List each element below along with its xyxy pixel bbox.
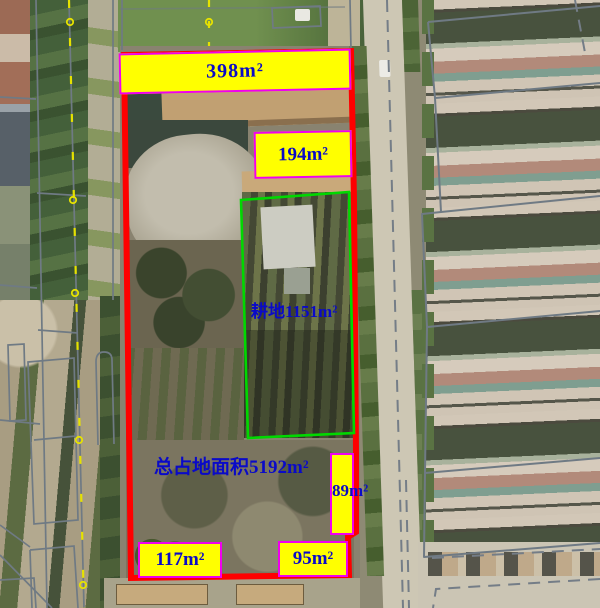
area-label-right-text: 89m² xyxy=(332,481,368,501)
area-label-upper: 194m² xyxy=(254,130,353,179)
area-label-bottom-left: 117m² xyxy=(138,542,222,578)
aerial-parcel-map: 398m² 194m² 89m² 117m² 95m² 耕地1151m² 总占地… xyxy=(0,0,600,608)
area-label-bottom-right-text: 95m² xyxy=(293,548,334,570)
area-label-bottom-right: 95m² xyxy=(278,541,348,577)
area-label-top-text: 398m² xyxy=(206,59,264,83)
total-area-text: 总占地面积5192m² xyxy=(154,452,309,479)
area-label-bottom-left-text: 117m² xyxy=(156,549,205,571)
cropland-area-text: 耕地1151m² xyxy=(251,297,337,322)
area-label-upper-text: 194m² xyxy=(278,143,328,166)
area-label-top: 398m² xyxy=(119,49,352,95)
